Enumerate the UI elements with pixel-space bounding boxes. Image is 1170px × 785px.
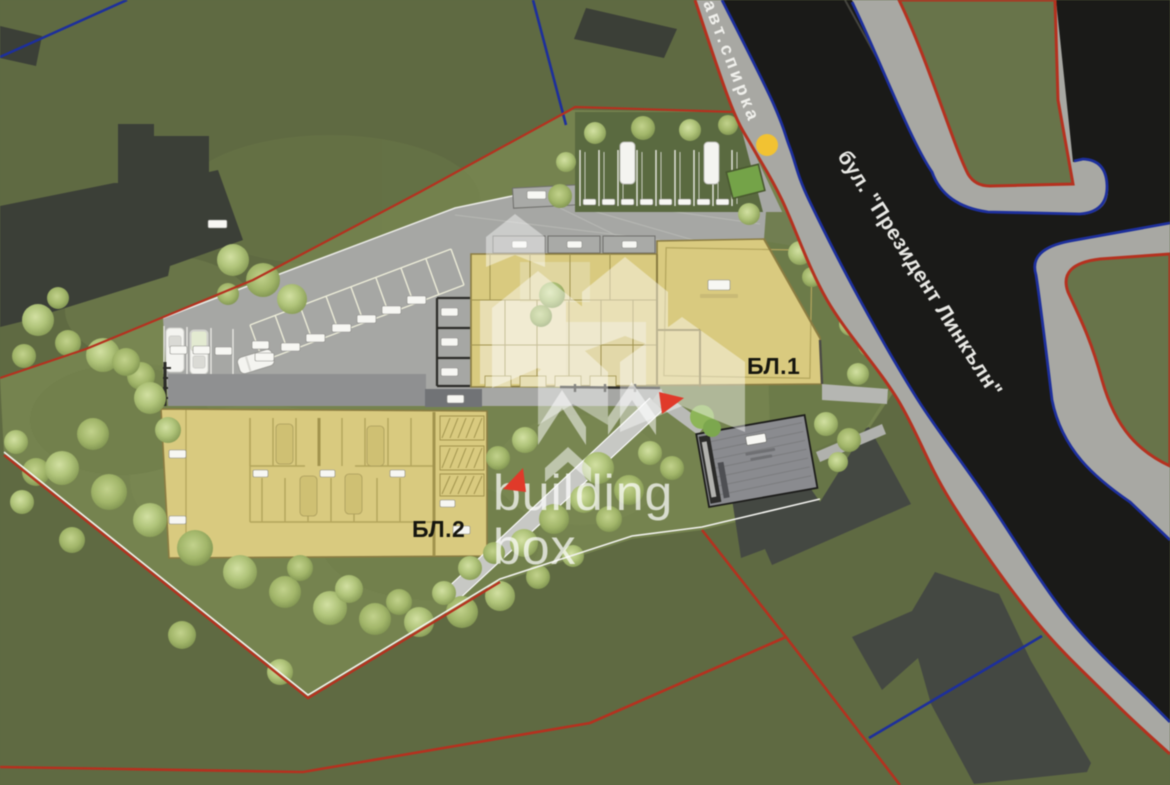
svg-text:box: box bbox=[493, 519, 577, 575]
svg-text:БЛ.2: БЛ.2 bbox=[412, 516, 465, 542]
svg-text:БЛ.1: БЛ.1 bbox=[747, 353, 800, 379]
